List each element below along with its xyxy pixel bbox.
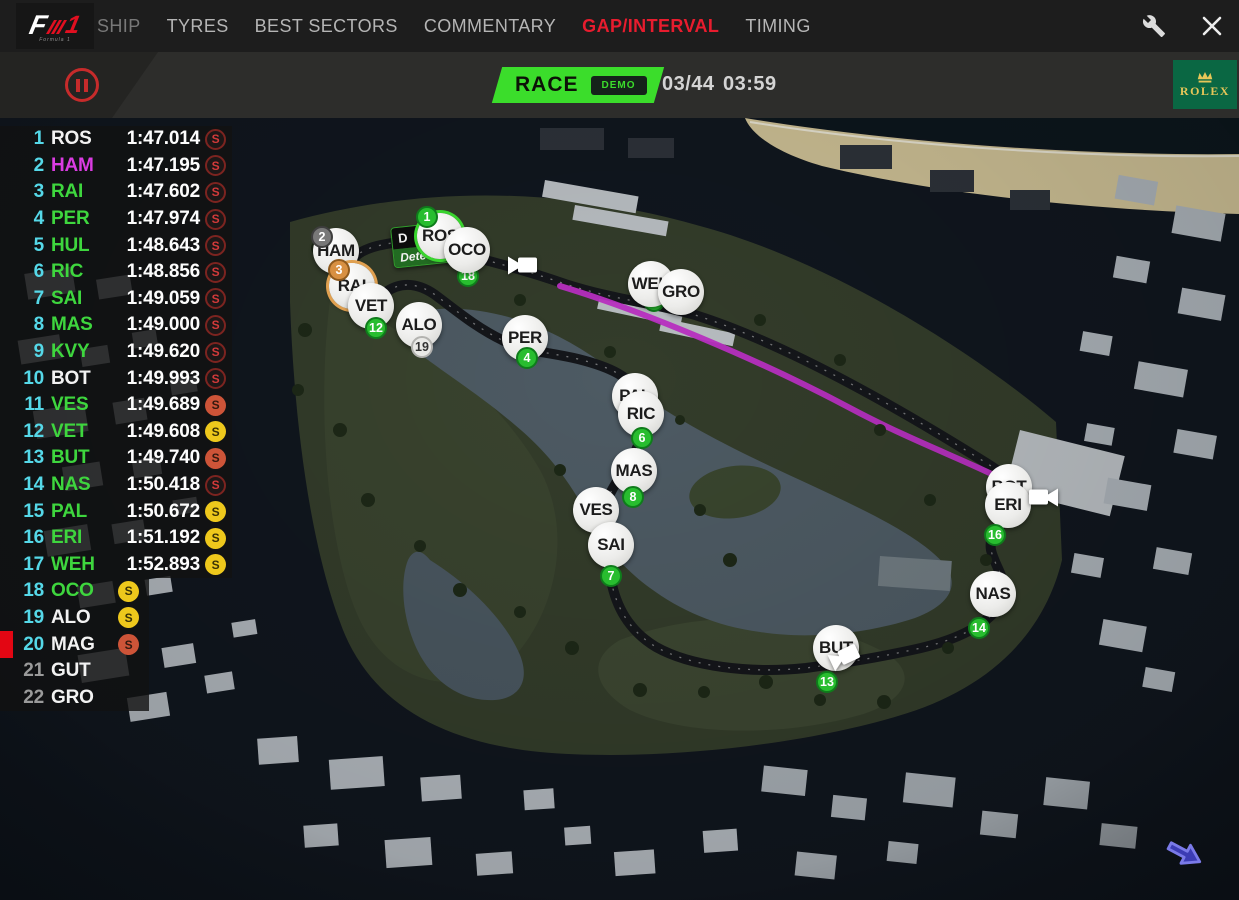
tyre-indicator: S [205,342,226,363]
driver-code: ROS [51,128,92,150]
tyre-indicator: S [205,129,226,150]
tyre-indicator: S [118,607,139,628]
position-number: 1 [0,128,44,150]
lap-time: 1:52.893 [127,554,200,576]
demo-chip: DEMO [591,76,647,95]
lap-time: 1:49.059 [127,288,200,310]
leaderboard-row-gro[interactable]: 22GRO [0,684,149,711]
position-number: 14 [0,474,44,496]
position-badge: 16 [984,524,1006,546]
f1-logo: F 1 Formula 1 [16,3,94,49]
lap-time: 1:49.993 [127,368,200,390]
driver-code: OCO [51,580,94,602]
tab-gap-interval[interactable]: GAP/INTERVAL [582,16,719,37]
driver-marker-alo[interactable]: 19ALO [396,302,442,348]
driver-code: PER [51,208,89,230]
leaderboard-row-pal[interactable]: 15PAL1:50.672S [0,498,232,525]
position-number: 8 [0,314,44,336]
leaderboard-row-sai[interactable]: 7SAI1:49.059S [0,286,232,313]
position-badge: 4 [516,347,538,369]
driver-marker-gro[interactable]: GRO [658,269,704,315]
leaderboard-row-eri[interactable]: 16ERI1:51.192S [0,525,232,552]
lap-time: 1:49.740 [127,447,200,469]
position-number: 18 [0,580,44,602]
leaderboard: 1ROS1:47.014S2HAM1:47.195S3RAI1:47.602S4… [0,126,232,711]
position-number: 11 [0,394,44,416]
driver-marker-oco[interactable]: 18OCO [444,227,490,273]
driver-code: WEH [51,554,95,576]
lap-time: 1:50.672 [127,501,200,523]
lap-counter: 03/44 [662,73,715,96]
session-badge: RACE DEMO [492,67,664,103]
leaderboard-row-nas[interactable]: 14NAS1:50.418S [0,472,232,499]
rolex-logo: ROLEX [1173,60,1237,109]
position-badge: 1 [416,206,438,228]
leaderboard-row-oco[interactable]: 18OCOS [0,578,149,605]
driver-code: KVY [51,341,89,363]
f1-timing-app: D Detect 2HAM3RAI12VET19ALO1ROS18OCO4PER… [0,0,1239,900]
driver-marker-label: SAI [588,522,634,568]
tyre-indicator: S [205,475,226,496]
tyre-indicator: S [205,288,226,309]
driver-marker-label: OCO [444,227,490,273]
rolex-wordmark: ROLEX [1180,84,1230,99]
leaderboard-row-bot[interactable]: 10BOT1:49.993S [0,365,232,392]
lap-time: 1:47.974 [127,208,200,230]
tyre-indicator: S [205,528,226,549]
tab-commentary[interactable]: COMMENTARY [424,16,556,37]
position-number: 21 [0,660,44,682]
driver-code: NAS [51,474,91,496]
driver-code: VES [51,394,88,416]
tyre-indicator: S [205,315,226,336]
driver-code: HUL [51,235,89,257]
tyre-indicator: S [205,155,226,176]
tab-best-sectors[interactable]: BEST SECTORS [255,16,398,37]
tyre-indicator: S [205,421,226,442]
tab-timing[interactable]: TIMING [745,16,810,37]
driver-code: GRO [51,687,94,709]
f1-logo-one: 1 [64,15,82,36]
leaderboard-row-mas[interactable]: 8MAS1:49.000S [0,312,232,339]
tab-tyres[interactable]: TYRES [167,16,229,37]
lap-time: 1:49.620 [127,341,200,363]
leaderboard-row-weh[interactable]: 17WEH1:52.893S [0,552,232,579]
position-number: 19 [0,607,44,629]
tyre-indicator: S [205,501,226,522]
position-number: 2 [0,155,44,177]
tyre-indicator: S [118,581,139,602]
driver-code: RIC [51,261,83,283]
leaderboard-row-gut[interactable]: 21GUT [0,658,149,685]
driver-code: MAG [51,634,95,656]
position-number: 6 [0,261,44,283]
position-badge: 12 [365,317,387,339]
lap-time: 1:47.602 [127,181,200,203]
position-number: 16 [0,527,44,549]
position-badge: 14 [968,617,990,639]
tyre-indicator: S [205,235,226,256]
driver-code: ALO [51,607,91,629]
tyre-indicator: S [205,368,226,389]
tyre-indicator: S [118,634,139,655]
nav-tabs: SHIPTYRESBEST SECTORSCOMMENTARYGAP/INTER… [97,16,811,37]
leaderboard-row-kvy[interactable]: 9KVY1:49.620S [0,339,232,366]
driver-marker-nas[interactable]: 14NAS [970,571,1016,617]
position-number: 3 [0,181,44,203]
position-number: 22 [0,687,44,709]
close-icon[interactable] [1199,13,1225,39]
position-number: 9 [0,341,44,363]
leaderboard-row-ham[interactable]: 2HAM1:47.195S [0,153,232,180]
position-badge: 8 [622,486,644,508]
tyre-indicator: S [205,209,226,230]
driver-marker-ric[interactable]: 6RIC [618,391,664,437]
leaderboard-row-per[interactable]: 4PER1:47.974S [0,206,232,233]
driver-code: SAI [51,288,82,310]
driver-marker-label: NAS [970,571,1016,617]
position-badge: 6 [631,427,653,449]
tab-ship[interactable]: SHIP [97,16,141,37]
session-label: RACE [515,73,579,97]
leaderboard-row-vet[interactable]: 12VET1:49.608S [0,419,232,446]
lap-time: 1:47.195 [127,155,200,177]
tv-camera-icon [1026,487,1060,514]
driver-marker-sai[interactable]: 7SAI [588,522,634,568]
driver-code: HAM [51,155,94,177]
leaderboard-row-but[interactable]: 13BUT1:49.740S [0,445,232,472]
position-number: 15 [0,501,44,523]
session-time: 03:59 [723,73,777,96]
driver-marker-per[interactable]: 4PER [502,315,548,361]
driver-code: MAS [51,314,93,336]
driver-marker-vet[interactable]: 12VET [348,283,394,329]
top-nav: F 1 Formula 1 SHIPTYRESBEST SECTORSCOMME… [0,0,1239,52]
position-number: 5 [0,235,44,257]
leaderboard-row-ves[interactable]: 11VES1:49.689S [0,392,232,419]
lap-time: 1:49.689 [127,394,200,416]
driver-code: RAI [51,181,83,203]
tyre-indicator: S [205,262,226,283]
tyre-indicator: S [205,554,226,575]
leaderboard-row-mag[interactable]: 20MAGS [0,631,149,658]
driver-code: ERI [51,527,82,549]
driver-marker-label: GRO [658,269,704,315]
position-badge: 7 [600,565,622,587]
driver-marker-eri[interactable]: 16ERI [985,482,1031,528]
position-number: 12 [0,421,44,443]
position-number: 13 [0,447,44,469]
tyre-indicator: S [205,395,226,416]
position-number: 17 [0,554,44,576]
position-badge: 3 [328,259,350,281]
leaderboard-row-rai[interactable]: 3RAI1:47.602S [0,179,232,206]
pause-button[interactable] [65,68,99,102]
driver-code: PAL [51,501,87,523]
driver-code: VET [51,421,87,443]
driver-marker-label: ERI [985,482,1031,528]
position-number: 10 [0,368,44,390]
position-badge: 19 [411,336,433,358]
leaderboard-row-hul[interactable]: 5HUL1:48.643S [0,232,232,259]
lap-time: 1:48.856 [127,261,200,283]
position-flag [0,631,13,658]
position-number: 7 [0,288,44,310]
position-number: 4 [0,208,44,230]
position-badge: 2 [311,226,333,248]
leaderboard-row-ric[interactable]: 6RIC1:48.856S [0,259,232,286]
tv-camera-icon [506,255,540,282]
lap-time: 1:51.192 [127,527,200,549]
leaderboard-row-ros[interactable]: 1ROS1:47.014S [0,126,232,153]
tyre-indicator: S [205,448,226,469]
lap-time: 1:50.418 [127,474,200,496]
rolex-crown-icon [1195,71,1215,83]
driver-code: BUT [51,447,89,469]
settings-wrench-icon[interactable] [1141,13,1167,39]
driver-code: GUT [51,660,91,682]
lap-time: 1:48.643 [127,235,200,257]
driver-code: BOT [51,368,91,390]
lap-time: 1:49.608 [127,421,200,443]
lap-time: 1:47.014 [127,128,200,150]
leaderboard-row-alo[interactable]: 19ALOS [0,605,149,632]
race-status-bar: RACE DEMO 03/44 03:59 ROLEX [0,52,1239,118]
tyre-indicator: S [205,182,226,203]
lap-time: 1:49.000 [127,314,200,336]
